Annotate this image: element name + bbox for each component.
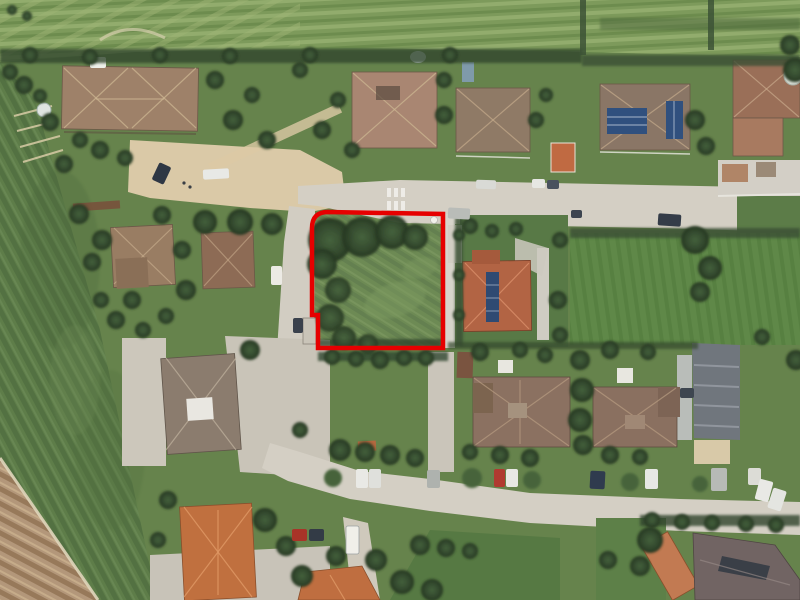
car bbox=[590, 471, 606, 490]
tree bbox=[330, 92, 346, 108]
tree bbox=[471, 343, 489, 361]
outbuilding bbox=[722, 164, 748, 182]
tree bbox=[435, 106, 453, 124]
tree bbox=[355, 442, 375, 462]
crosswalk-stripe bbox=[387, 201, 391, 210]
van bbox=[711, 468, 727, 491]
tree bbox=[390, 570, 414, 594]
bush bbox=[621, 473, 639, 491]
tree bbox=[123, 291, 141, 309]
car bbox=[292, 529, 307, 541]
hedge-tree bbox=[453, 229, 465, 241]
tree bbox=[406, 449, 424, 467]
outbuilding bbox=[498, 360, 513, 373]
meadow-texture bbox=[50, 325, 100, 435]
tree bbox=[697, 137, 715, 155]
car bbox=[448, 207, 471, 219]
shed-blue bbox=[462, 62, 474, 82]
car bbox=[494, 469, 505, 487]
tree bbox=[292, 422, 308, 438]
bush bbox=[462, 468, 482, 488]
car bbox=[680, 388, 694, 398]
tree bbox=[436, 72, 452, 88]
hedge-tree bbox=[674, 514, 690, 530]
bush bbox=[521, 449, 539, 467]
crosswalk-stripe bbox=[401, 201, 405, 210]
hedge-tree bbox=[302, 47, 318, 63]
tree bbox=[135, 322, 151, 338]
car bbox=[532, 179, 545, 188]
tree bbox=[93, 292, 109, 308]
hedge-tree bbox=[644, 512, 660, 528]
tree bbox=[92, 230, 112, 250]
crosswalk-stripe bbox=[394, 188, 398, 197]
car bbox=[645, 469, 658, 489]
tree bbox=[698, 256, 722, 280]
tree bbox=[601, 341, 619, 359]
tree bbox=[512, 342, 528, 358]
hedge-line bbox=[580, 0, 586, 55]
hedge-tree bbox=[552, 232, 568, 248]
tree bbox=[780, 35, 800, 55]
car bbox=[271, 266, 282, 285]
satellite-map[interactable] bbox=[0, 0, 800, 600]
tree bbox=[158, 308, 174, 324]
tree bbox=[7, 5, 17, 15]
tree bbox=[462, 543, 478, 559]
tree bbox=[537, 347, 553, 363]
tree bbox=[528, 112, 544, 128]
tree bbox=[630, 556, 650, 576]
tree bbox=[159, 491, 177, 509]
tree bbox=[410, 535, 430, 555]
tree bbox=[244, 87, 260, 103]
tree bbox=[117, 150, 133, 166]
outbuilding bbox=[617, 368, 633, 383]
hedge-tree bbox=[222, 48, 238, 64]
tree bbox=[568, 408, 592, 432]
car bbox=[658, 213, 682, 227]
roof-skylight bbox=[376, 86, 400, 100]
tree bbox=[253, 508, 277, 532]
bush bbox=[523, 471, 541, 489]
hedge-tree bbox=[768, 517, 784, 533]
tree bbox=[329, 439, 351, 461]
tree bbox=[313, 121, 331, 139]
tree bbox=[690, 282, 710, 302]
tree-parcel bbox=[358, 334, 378, 354]
bush bbox=[485, 224, 499, 238]
tree bbox=[176, 280, 196, 300]
driveway-center bbox=[428, 352, 454, 472]
tree bbox=[227, 209, 253, 235]
car bbox=[506, 469, 518, 487]
hedge-tree bbox=[453, 269, 465, 281]
roof-dormer bbox=[625, 415, 645, 429]
field-east bbox=[570, 233, 800, 345]
tree bbox=[291, 565, 313, 587]
tree bbox=[637, 527, 663, 553]
car bbox=[293, 318, 303, 333]
car bbox=[427, 470, 440, 488]
solar-panels bbox=[666, 101, 683, 139]
tree bbox=[41, 113, 59, 131]
car bbox=[309, 529, 324, 541]
hedge-tree bbox=[22, 47, 38, 63]
bush bbox=[601, 446, 619, 464]
bush bbox=[692, 476, 708, 492]
tree bbox=[83, 253, 101, 271]
tree bbox=[22, 11, 32, 21]
roof-house-east-wing bbox=[472, 250, 500, 264]
tree bbox=[258, 131, 276, 149]
tree-parcel bbox=[325, 277, 351, 303]
outbuilding bbox=[756, 162, 776, 177]
crosswalk-stripe bbox=[401, 188, 405, 197]
hedge-line bbox=[708, 0, 714, 50]
bush bbox=[324, 469, 342, 487]
hedge-tree bbox=[324, 349, 340, 365]
hedge-tree bbox=[704, 515, 720, 531]
tree bbox=[261, 213, 283, 235]
tree bbox=[599, 551, 617, 569]
tree bbox=[421, 579, 443, 600]
tree bbox=[206, 71, 224, 89]
solar-panels bbox=[486, 272, 499, 322]
tree bbox=[437, 539, 455, 557]
hedge-tree bbox=[152, 47, 168, 63]
solar-panels bbox=[607, 108, 647, 134]
pedestrian bbox=[182, 181, 185, 184]
tree bbox=[150, 532, 166, 548]
tree bbox=[72, 132, 88, 148]
tree bbox=[570, 378, 594, 402]
pedestrian bbox=[188, 185, 191, 188]
hedge-tree bbox=[82, 49, 98, 65]
hedge-tree bbox=[453, 309, 465, 321]
tree bbox=[573, 435, 593, 455]
garden-northeast bbox=[737, 196, 800, 233]
tree bbox=[681, 226, 709, 254]
boundary-marker bbox=[431, 217, 438, 224]
car bbox=[547, 180, 559, 189]
hedge-tree bbox=[371, 351, 389, 369]
tree bbox=[153, 206, 171, 224]
utility-box bbox=[303, 318, 316, 344]
car bbox=[571, 210, 582, 218]
tree bbox=[292, 62, 308, 78]
hedge-tree bbox=[418, 350, 434, 366]
roof-house-south-2-wing bbox=[658, 387, 680, 417]
tree bbox=[365, 549, 387, 571]
tree bbox=[15, 76, 33, 94]
tree bbox=[640, 344, 656, 360]
truck bbox=[346, 526, 359, 554]
field-hedge-line bbox=[600, 18, 800, 30]
bush bbox=[491, 446, 509, 464]
car bbox=[203, 168, 229, 179]
tree bbox=[69, 204, 89, 224]
inner-courtyard bbox=[186, 397, 213, 421]
tree bbox=[55, 155, 73, 173]
terrace-tan bbox=[694, 440, 730, 464]
hedge-tree bbox=[738, 516, 754, 532]
tree bbox=[240, 340, 260, 360]
car bbox=[476, 180, 496, 190]
tree bbox=[539, 88, 553, 102]
tree bbox=[326, 546, 346, 566]
bush bbox=[509, 222, 523, 236]
satellite-canvas bbox=[0, 0, 800, 600]
tree bbox=[91, 141, 109, 159]
hedge-tree bbox=[549, 291, 567, 309]
hedge-tree bbox=[442, 47, 458, 63]
hedge-tree bbox=[396, 350, 412, 366]
car bbox=[356, 469, 368, 488]
bush bbox=[462, 218, 478, 234]
tree bbox=[380, 445, 400, 465]
bush bbox=[462, 444, 478, 460]
tree bbox=[33, 89, 47, 103]
roof-house-west-1-wing bbox=[115, 257, 149, 289]
tree bbox=[107, 311, 125, 329]
tree bbox=[754, 329, 770, 345]
tree bbox=[2, 64, 18, 80]
tree-parcel bbox=[402, 224, 428, 250]
crosswalk-stripe bbox=[387, 188, 391, 197]
tree bbox=[173, 241, 191, 259]
roof-house-south-1-wing bbox=[473, 383, 493, 413]
hedgerow-north bbox=[582, 55, 800, 66]
tree bbox=[570, 350, 590, 370]
hedge-tree bbox=[348, 351, 364, 367]
bush bbox=[632, 449, 648, 465]
crosswalk-stripe bbox=[394, 201, 398, 210]
hedge-tree bbox=[552, 327, 568, 343]
tree bbox=[223, 110, 243, 130]
map-feature-layers bbox=[0, 0, 800, 600]
tree bbox=[193, 210, 217, 234]
car bbox=[369, 469, 381, 488]
roof-dormer bbox=[508, 403, 527, 418]
roof-shed-orange bbox=[551, 143, 575, 172]
roof-house-5-wing bbox=[733, 118, 783, 156]
tree bbox=[685, 110, 705, 130]
shed-brown bbox=[457, 352, 474, 379]
driveway-west bbox=[122, 338, 166, 466]
tree bbox=[344, 142, 360, 158]
